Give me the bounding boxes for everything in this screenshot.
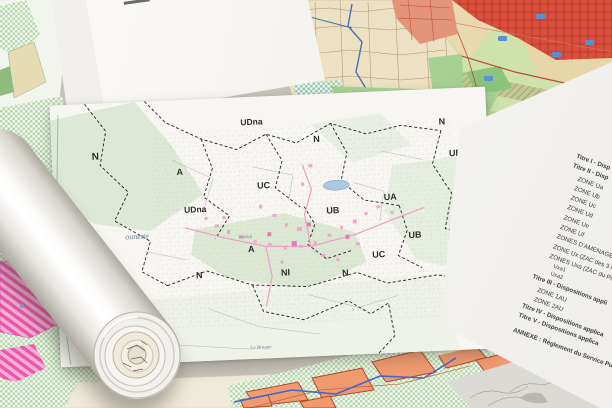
zone-label: N [438,116,445,126]
zone-label: A [248,244,255,254]
zone-label: N [92,152,100,163]
rolled-plan-end-spiral [93,311,181,399]
zone-label: N [342,268,349,278]
photo-of-urbanism-plans: n Local d'Urbanisme Modification Plan Lo… [0,0,612,408]
zone-label: UB [326,205,340,216]
zone-label: UDna [240,116,263,127]
zone-label: UC [257,180,271,191]
zone-label: UB [408,230,422,241]
zone-label: UC [372,249,386,260]
zone-label: UDna [184,204,207,215]
place-name: La Braque [249,345,272,351]
zone-label: N [196,270,203,280]
zone-label: NI [281,267,290,277]
zone-label: A [176,167,183,177]
zone-label: UA [384,192,398,203]
place-name: Rivière [237,235,253,241]
zone-label: N [313,134,320,144]
place-name: ounette [125,231,149,241]
